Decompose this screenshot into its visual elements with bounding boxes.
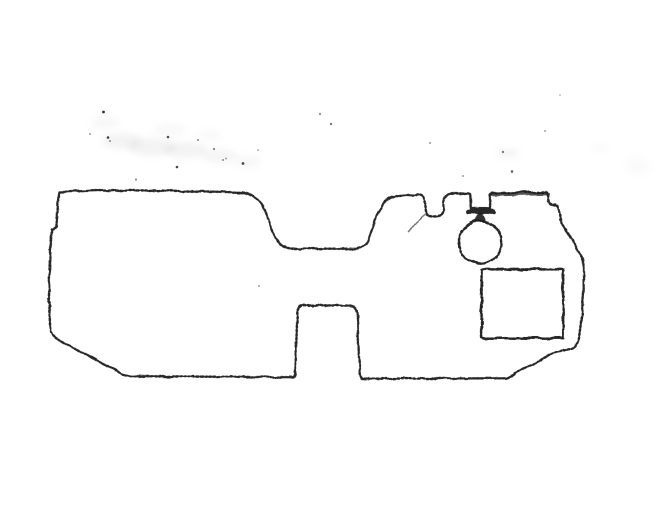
speckle-dot [429,142,431,144]
speckle-dot [258,285,260,287]
speckle-dot [511,170,514,173]
top-edge-retrace [492,194,549,195]
grommet-circle-overlay [459,221,502,264]
speckle-dot [544,130,546,132]
speckle-dot [462,175,464,177]
ink-layer [49,190,584,378]
speckle-dot [107,136,110,139]
speckle-dot [559,94,561,96]
scratch-mark [408,215,425,233]
speckle-dot [222,159,224,161]
smudge-mark [497,149,519,157]
speckle-dot [502,151,504,153]
smudge-mark [235,156,261,168]
smudge-mark [202,149,238,163]
scan-smudge-layer [91,117,650,174]
speckle-dot [176,166,179,169]
speckle-dot [319,113,321,115]
speckle-dot [213,148,215,150]
part-outline-overlay [49,190,584,378]
scanned-diagram-page [0,0,656,524]
smudge-mark [626,158,650,174]
smudge-mark [91,117,119,129]
smudge-mark [591,144,609,152]
speckle-dot [102,111,105,114]
speckle-dot [89,133,91,135]
speckle-dot [109,140,111,142]
smudge-mark [198,130,222,140]
speckle-dot [242,162,245,165]
speckle-dot [225,158,227,160]
speckle-dot [330,123,332,125]
speckle-dot [135,178,137,180]
speckle-dot [257,149,259,151]
inset-rectangle-overlay [482,269,564,338]
speckle-dot [167,136,170,139]
smudge-mark [164,142,208,158]
inset-rectangle [482,269,564,338]
scanned-part-diagram [0,0,656,524]
smudge-mark [154,124,186,136]
part-outline [49,190,584,378]
speckle-dot [197,139,199,141]
